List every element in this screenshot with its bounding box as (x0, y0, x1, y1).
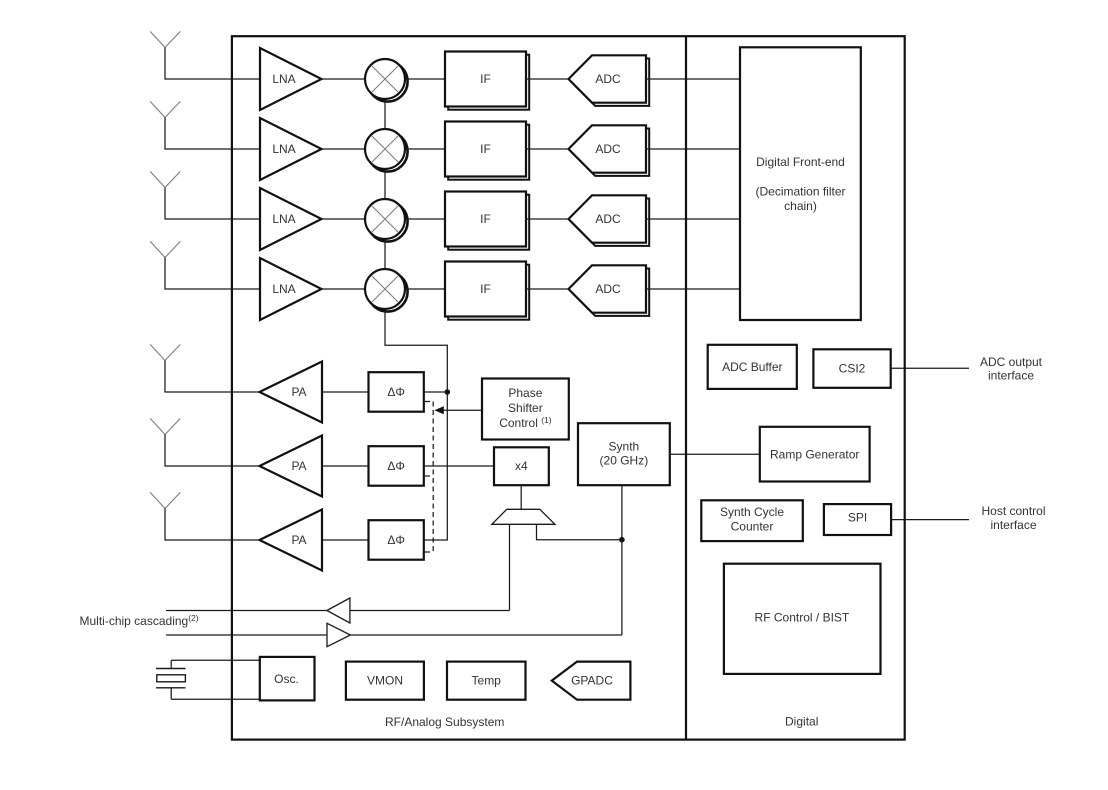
svg-text:interface: interface (988, 368, 1034, 382)
svg-text:ADC output: ADC output (980, 355, 1043, 369)
svg-text:Counter: Counter (731, 520, 774, 534)
svg-text:ΔΦ: ΔΦ (387, 533, 405, 547)
svg-text:ADC Buffer: ADC Buffer (722, 360, 782, 374)
svg-text:ADC: ADC (595, 72, 621, 86)
svg-text:SPI: SPI (848, 511, 867, 525)
svg-text:ΔΦ: ΔΦ (387, 385, 405, 399)
svg-text:Shifter: Shifter (508, 401, 543, 415)
svg-text:chain): chain) (784, 199, 817, 213)
svg-text:Synth Cycle: Synth Cycle (720, 505, 784, 519)
svg-text:interface: interface (990, 518, 1036, 532)
svg-text:ΔΦ: ΔΦ (387, 459, 405, 473)
svg-text:Digital Front-end: Digital Front-end (756, 155, 845, 169)
svg-text:RF Control / BIST: RF Control / BIST (755, 611, 850, 625)
svg-text:IF: IF (480, 212, 491, 226)
svg-text:Ramp Generator: Ramp Generator (770, 447, 859, 461)
svg-text:ADC: ADC (595, 142, 621, 156)
svg-text:x4: x4 (515, 459, 528, 473)
svg-text:(20 GHz): (20 GHz) (600, 454, 649, 468)
svg-text:Synth: Synth (609, 440, 640, 454)
svg-text:LNA: LNA (272, 282, 295, 296)
svg-text:IF: IF (480, 142, 491, 156)
svg-text:IF: IF (480, 282, 491, 296)
svg-text:Temp: Temp (472, 674, 502, 688)
svg-text:LNA: LNA (272, 212, 295, 226)
svg-text:LNA: LNA (272, 72, 295, 86)
svg-text:CSI2: CSI2 (839, 362, 866, 376)
svg-text:RF/Analog Subsystem: RF/Analog Subsystem (385, 715, 504, 729)
svg-text:ADC: ADC (595, 212, 621, 226)
svg-text:(Decimation filter: (Decimation filter (755, 185, 845, 199)
svg-text:GPADC: GPADC (571, 674, 613, 688)
svg-text:PA: PA (291, 385, 306, 399)
svg-text:Multi-chip cascading(2): Multi-chip cascading(2) (80, 613, 199, 628)
svg-text:VMON: VMON (367, 674, 403, 688)
svg-text:ADC: ADC (595, 282, 621, 296)
svg-text:LNA: LNA (272, 142, 295, 156)
svg-text:Host control: Host control (981, 504, 1045, 518)
svg-text:PA: PA (291, 459, 306, 473)
svg-text:Osc.: Osc. (274, 672, 299, 686)
svg-text:Digital: Digital (785, 715, 818, 729)
svg-text:Phase: Phase (508, 386, 542, 400)
svg-text:PA: PA (291, 533, 306, 547)
svg-text:IF: IF (480, 72, 491, 86)
